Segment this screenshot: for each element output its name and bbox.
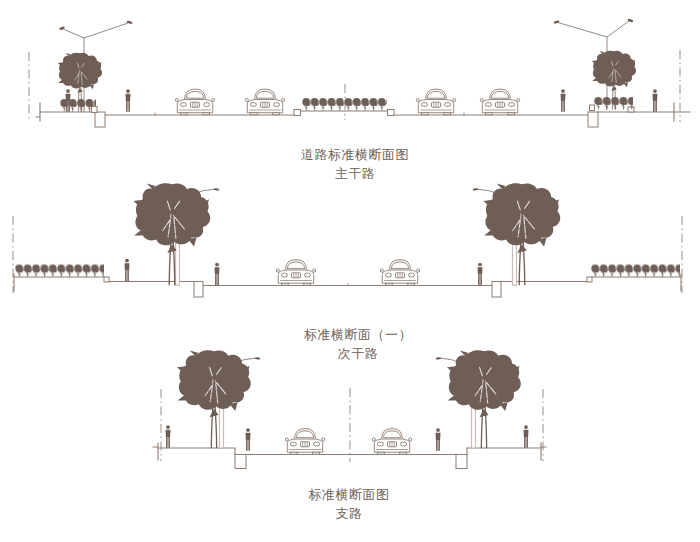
car-icon (480, 89, 519, 115)
shrub-row (60, 98, 96, 112)
cross-section-branch-road (153, 350, 546, 468)
car-icon (372, 429, 411, 455)
figure-caption-branch-road: 标准横断面图 支路 (239, 485, 459, 523)
caption-title: 标准横断面图 (239, 485, 459, 504)
pedestrian-icon (561, 89, 566, 112)
car-icon (285, 429, 324, 455)
shrub-row (302, 97, 387, 111)
tree-icon (447, 350, 521, 448)
curb (587, 277, 592, 282)
tree-icon (177, 350, 251, 448)
drain-pit (194, 282, 203, 298)
diagram-canvas (0, 0, 700, 542)
figure-caption-secondary-road: 标准横断面（一） 次干路 (248, 325, 468, 363)
retaining-wall (153, 443, 158, 460)
pedestrian-icon (125, 259, 130, 282)
road-cross-sections-figure: 道路标准横断面图 主干路 标准横断面（一） 次干路 标准横断面图 支路 (0, 0, 700, 542)
car-icon (175, 89, 214, 115)
pedestrian-icon (478, 263, 483, 286)
caption-road-type: 次干路 (248, 344, 468, 363)
caption-road-type: 主干路 (245, 164, 465, 183)
shrub-row (15, 264, 104, 278)
figure-caption-main-road: 道路标准横断面图 主干路 (245, 145, 465, 183)
drain-pit (95, 112, 105, 127)
retaining-wall (36, 103, 40, 121)
car-icon (245, 89, 284, 115)
caption-title: 标准横断面（一） (248, 325, 468, 344)
shrub-row (594, 96, 633, 110)
car-icon (276, 260, 315, 286)
ground-profile-line (158, 448, 541, 455)
curb (590, 105, 595, 111)
pedestrian-icon (126, 89, 131, 112)
drain-pit (235, 455, 246, 469)
retaining-wall (541, 443, 546, 460)
shrub-row (591, 264, 680, 278)
pedestrian-icon (524, 425, 529, 448)
caption-title: 道路标准横断面图 (245, 145, 465, 164)
cross-section-secondary-road (13, 183, 682, 297)
tree-icon (133, 183, 210, 285)
pedestrian-icon (166, 425, 171, 448)
curb (294, 110, 301, 116)
pedestrian-icon (246, 428, 251, 451)
pedestrian-icon (215, 263, 220, 286)
caption-road-type: 支路 (239, 504, 459, 523)
pedestrian-icon (436, 428, 441, 451)
cross-section-main-road (29, 18, 690, 127)
pedestrian-icon (653, 89, 658, 112)
tree-icon (483, 183, 560, 285)
car-icon (416, 89, 455, 115)
drain-pit (492, 282, 501, 298)
car-icon (380, 260, 419, 286)
ground-profile-line (14, 277, 681, 286)
drain-pit (588, 112, 598, 127)
drain-pit (456, 455, 467, 469)
curb (388, 110, 395, 116)
curb (104, 277, 109, 282)
